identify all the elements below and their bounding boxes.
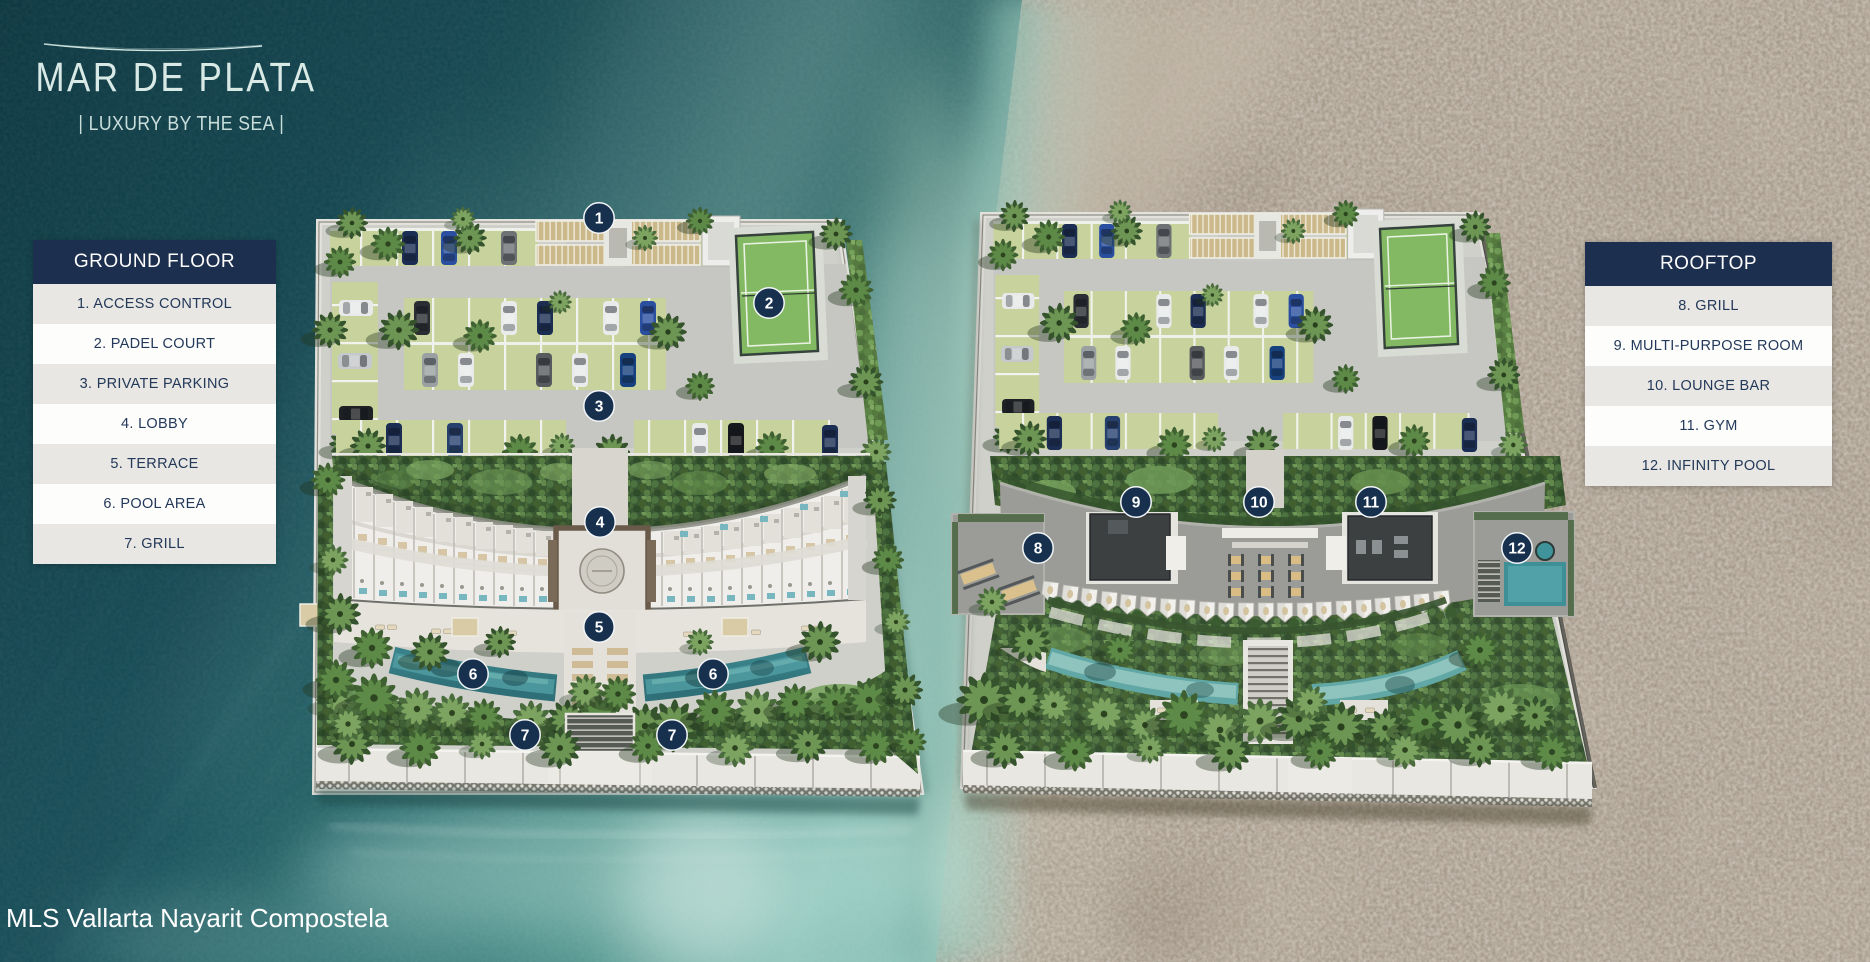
svg-text:1: 1 — [595, 211, 604, 228]
svg-text:6: 6 — [469, 667, 478, 684]
svg-text:3: 3 — [595, 399, 604, 416]
svg-text:8: 8 — [1034, 541, 1043, 558]
svg-text:2: 2 — [765, 296, 774, 313]
svg-text:10: 10 — [1250, 495, 1267, 512]
svg-text:7: 7 — [521, 728, 530, 745]
svg-text:12: 12 — [1508, 541, 1525, 558]
svg-text:6: 6 — [709, 667, 718, 684]
svg-text:9: 9 — [1132, 495, 1141, 512]
svg-text:7: 7 — [668, 728, 677, 745]
svg-text:11: 11 — [1363, 495, 1380, 512]
svg-text:4: 4 — [596, 515, 605, 532]
svg-text:5: 5 — [595, 620, 604, 637]
